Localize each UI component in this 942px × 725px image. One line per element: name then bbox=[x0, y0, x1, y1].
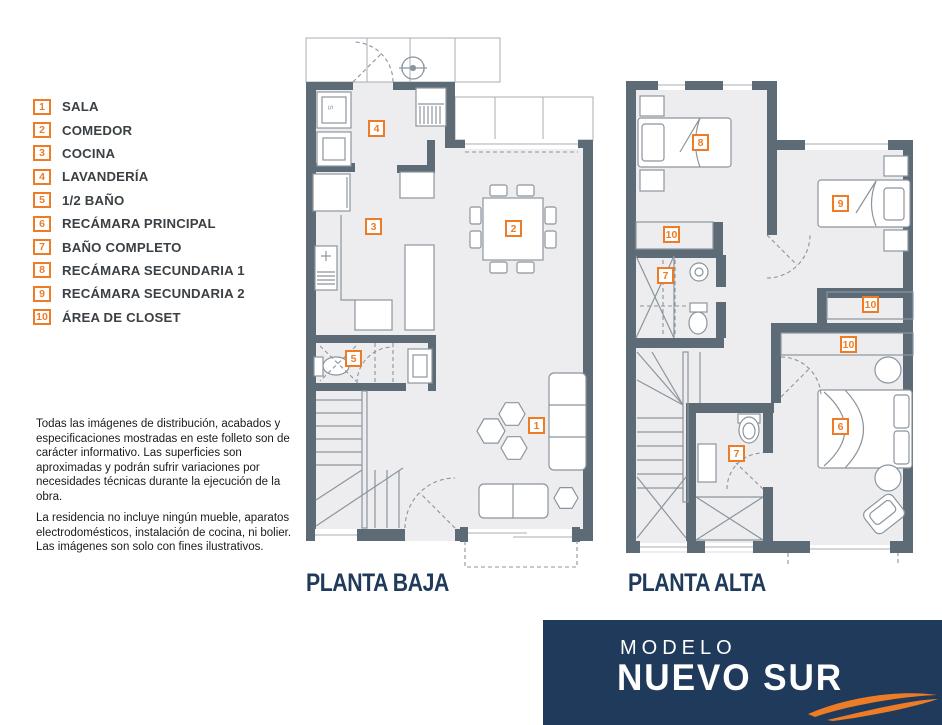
legend-label: RECÁMARA SECUNDARIA 1 bbox=[62, 263, 245, 278]
room-marker-comedor: 2 bbox=[505, 220, 522, 237]
washer-label: S bbox=[326, 105, 333, 110]
room-marker-closet-1: 10 bbox=[663, 226, 680, 243]
legend-label: RECÁMARA SECUNDARIA 2 bbox=[62, 286, 245, 301]
planta-alta-floorplan: 8 9 10 7 10 10 6 7 bbox=[620, 75, 920, 565]
legend-item-comedor: 2COMEDOR bbox=[33, 118, 245, 141]
room-marker-closet-2: 10 bbox=[862, 296, 879, 313]
legend-label: COCINA bbox=[62, 146, 115, 161]
planta-baja-svg bbox=[295, 30, 625, 575]
room-marker-recamara-secundaria-2: 9 bbox=[832, 195, 849, 212]
legend-number-badge: 8 bbox=[33, 262, 51, 278]
planta-baja-title: PLANTA BAJA bbox=[306, 569, 449, 598]
brochure-page: 1SALA 2COMEDOR 3COCINA 4LAVANDERÍA 51/2 … bbox=[0, 0, 942, 725]
legend-number-badge: 3 bbox=[33, 145, 51, 161]
legend-item-sala: 1SALA bbox=[33, 95, 245, 118]
legend-label: ÁREA DE CLOSET bbox=[62, 310, 181, 325]
legend-label: RECÁMARA PRINCIPAL bbox=[62, 216, 216, 231]
legend-number-badge: 7 bbox=[33, 239, 51, 255]
room-marker-sala: 1 bbox=[528, 417, 545, 434]
legend-item-bano-completo: 7BAÑO COMPLETO bbox=[33, 235, 245, 258]
legend-number-badge: 10 bbox=[33, 309, 51, 325]
brand-footer: MODELO NUEVO SUR bbox=[543, 620, 942, 725]
legend-number-badge: 4 bbox=[33, 169, 51, 185]
disclaimer-paragraph-2: La residencia no incluye ningún mueble, … bbox=[36, 511, 300, 555]
room-marker-lavanderia: 4 bbox=[368, 120, 385, 137]
legend-number-badge: 9 bbox=[33, 286, 51, 302]
room-marker-bano-2: 7 bbox=[728, 445, 745, 462]
legend-item-recamara-principal: 6RECÁMARA PRINCIPAL bbox=[33, 212, 245, 235]
room-marker-recamara-principal: 6 bbox=[832, 418, 849, 435]
planta-alta-svg bbox=[620, 75, 920, 565]
swoosh-icon bbox=[805, 690, 940, 724]
legend-item-recamara-secundaria-1: 8RECÁMARA SECUNDARIA 1 bbox=[33, 259, 245, 282]
planta-baja-floorplan: S 4 3 2 5 1 bbox=[295, 30, 625, 575]
legend-number-badge: 5 bbox=[33, 192, 51, 208]
room-legend: 1SALA 2COMEDOR 3COCINA 4LAVANDERÍA 51/2 … bbox=[33, 95, 245, 329]
legend-label: BAÑO COMPLETO bbox=[62, 240, 182, 255]
room-marker-recamara-secundaria-1: 8 bbox=[692, 134, 709, 151]
legend-item-recamara-secundaria-2: 9RECÁMARA SECUNDARIA 2 bbox=[33, 282, 245, 305]
legend-item-area-de-closet: 10ÁREA DE CLOSET bbox=[33, 306, 245, 329]
balcony-outline bbox=[788, 553, 898, 565]
legend-number-badge: 2 bbox=[33, 122, 51, 138]
legend-item-lavanderia: 4LAVANDERÍA bbox=[33, 165, 245, 188]
legend-number-badge: 1 bbox=[33, 99, 51, 115]
room-marker-medio-bano: 5 bbox=[345, 350, 362, 367]
legend-label: SALA bbox=[62, 99, 99, 114]
legend-item-cocina: 3COCINA bbox=[33, 142, 245, 165]
legend-number-badge: 6 bbox=[33, 216, 51, 232]
room-marker-closet-3: 10 bbox=[840, 336, 857, 353]
legend-label: LAVANDERÍA bbox=[62, 169, 149, 184]
room-marker-bano-1: 7 bbox=[657, 267, 674, 284]
disclaimer-paragraph-1: Todas las imágenes de distribución, acab… bbox=[36, 417, 300, 505]
planta-alta-title: PLANTA ALTA bbox=[628, 569, 766, 598]
legend-item-medio-bano: 51/2 BAÑO bbox=[33, 189, 245, 212]
legend-label: COMEDOR bbox=[62, 123, 132, 138]
legend-label: 1/2 BAÑO bbox=[62, 193, 124, 208]
room-marker-cocina: 3 bbox=[365, 218, 382, 235]
patio-outline bbox=[465, 541, 577, 567]
